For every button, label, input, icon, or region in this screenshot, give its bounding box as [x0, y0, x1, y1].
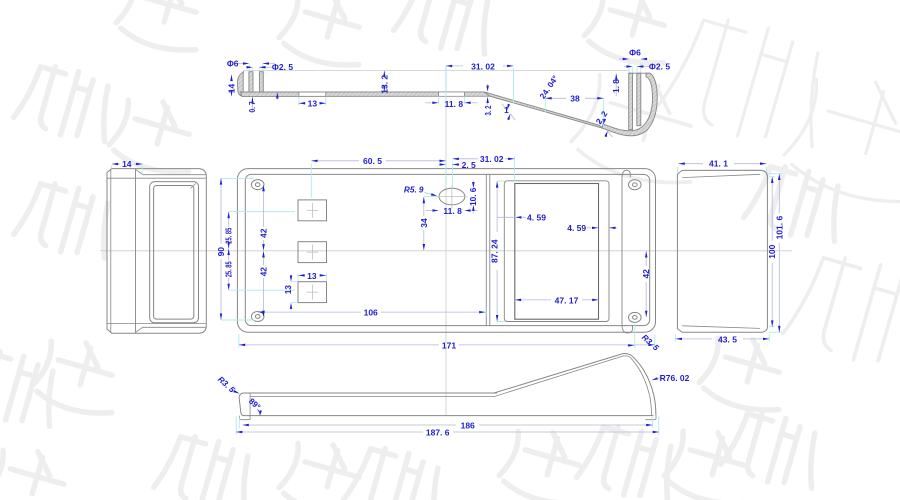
svg-text:42: 42 [259, 267, 269, 277]
svg-text:13: 13 [307, 271, 317, 281]
svg-text:11. 8: 11. 8 [445, 99, 464, 109]
svg-text:3. 2: 3. 2 [484, 105, 493, 115]
svg-text:186: 186 [461, 420, 475, 430]
svg-text:Φ2. 5: Φ2. 5 [649, 61, 670, 71]
svg-text:13. 2: 13. 2 [379, 75, 389, 94]
svg-text:25. 85: 25. 85 [224, 228, 234, 244]
svg-text:31. 02: 31. 02 [471, 62, 495, 72]
svg-text:171: 171 [442, 340, 456, 350]
svg-text:47. 17: 47. 17 [555, 295, 579, 305]
svg-text:42: 42 [259, 228, 269, 238]
svg-text:Φ6: Φ6 [629, 48, 641, 58]
svg-text:Φ6: Φ6 [227, 59, 239, 69]
svg-text:Φ2. 5: Φ2. 5 [272, 62, 293, 72]
svg-text:R3. 5: R3. 5 [640, 333, 661, 353]
svg-text:60. 5: 60. 5 [363, 156, 382, 166]
svg-text:0. 7: 0. 7 [248, 101, 257, 112]
svg-text:R76. 02: R76. 02 [660, 373, 690, 383]
svg-text:4. 59: 4. 59 [567, 223, 586, 233]
svg-text:R5. 9: R5. 9 [404, 186, 424, 195]
svg-text:34: 34 [419, 218, 429, 228]
svg-text:4. 59: 4. 59 [527, 213, 546, 223]
svg-text:187. 6: 187. 6 [426, 427, 450, 437]
svg-text:89°: 89° [247, 397, 262, 412]
svg-text:43. 5: 43. 5 [718, 334, 737, 344]
svg-text:90: 90 [216, 247, 226, 257]
svg-text:14: 14 [227, 84, 237, 94]
svg-text:87. 24: 87. 24 [490, 239, 500, 263]
svg-text:38: 38 [570, 93, 580, 103]
svg-text:41. 1: 41. 1 [709, 159, 728, 169]
svg-text:25. 85: 25. 85 [224, 261, 234, 277]
svg-text:10. 6: 10. 6 [469, 187, 478, 206]
svg-text:1: 1 [504, 106, 509, 115]
svg-text:2. 5: 2. 5 [462, 160, 476, 170]
svg-text:13: 13 [308, 99, 318, 109]
svg-text:31. 02: 31. 02 [480, 154, 504, 164]
svg-text:101. 6: 101. 6 [774, 216, 784, 240]
svg-text:14: 14 [122, 159, 132, 169]
svg-text:42: 42 [641, 269, 651, 279]
svg-text:13: 13 [284, 285, 293, 295]
svg-text:100: 100 [767, 244, 777, 258]
svg-text:106: 106 [364, 307, 378, 317]
svg-text:1. 8: 1. 8 [612, 79, 621, 93]
svg-text:2. 2: 2. 2 [594, 109, 609, 126]
svg-text:11. 8: 11. 8 [443, 206, 462, 216]
svg-text:24. 04°: 24. 04° [538, 74, 560, 101]
